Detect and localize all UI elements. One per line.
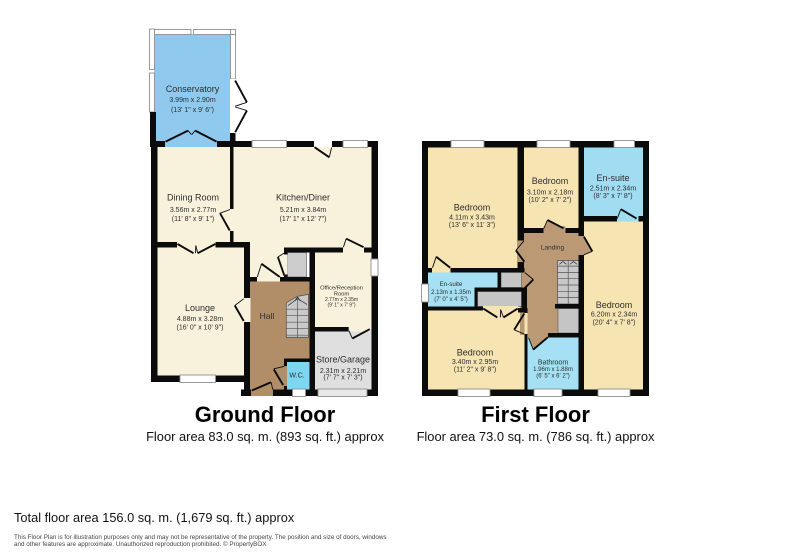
svg-text:2.51m x 2.34m: 2.51m x 2.34m: [590, 186, 636, 193]
svg-text:(7' 7" x 7' 3"): (7' 7" x 7' 3"): [323, 375, 362, 382]
svg-text:4.11m x 3.43m: 4.11m x 3.43m: [449, 215, 495, 222]
svg-text:3.56m x 2.77m: 3.56m x 2.77m: [170, 207, 216, 214]
svg-text:1.96m x 1.88m: 1.96m x 1.88m: [533, 367, 573, 373]
svg-text:First Floor: First Floor: [481, 402, 590, 427]
svg-text:and other features are approxi: and other features are approximate. Unau…: [14, 540, 267, 548]
svg-text:En-suite: En-suite: [596, 173, 629, 183]
svg-text:3.99m x 2.90m: 3.99m x 2.90m: [169, 97, 215, 104]
svg-text:(7' 0" x 4' 5"): (7' 0" x 4' 5"): [434, 297, 468, 303]
svg-text:Total floor area 156.0 sq. m.: Total floor area 156.0 sq. m. (1,679 sq.…: [14, 510, 295, 525]
svg-text:Dining Room: Dining Room: [167, 193, 219, 203]
svg-text:Bathroom: Bathroom: [538, 360, 569, 367]
svg-text:Conservatory: Conservatory: [166, 84, 220, 94]
svg-text:En-suite: En-suite: [440, 281, 463, 288]
svg-text:(16' 0" x 10' 9"): (16' 0" x 10' 9"): [177, 325, 224, 332]
svg-text:5.21m x 3.84m: 5.21m x 3.84m: [280, 207, 326, 214]
svg-text:Floor area 83.0 sq. m. (893 sq: Floor area 83.0 sq. m. (893 sq. ft.) app…: [146, 429, 384, 444]
svg-text:(20' 4" x 7' 8"): (20' 4" x 7' 8"): [592, 320, 635, 327]
svg-text:(8' 3" x 7' 8"): (8' 3" x 7' 8"): [593, 193, 632, 200]
svg-text:Landing: Landing: [541, 244, 565, 251]
svg-text:Lounge: Lounge: [185, 303, 215, 313]
svg-text:(9' 1" x 7' 9"): (9' 1" x 7' 9"): [328, 303, 356, 309]
svg-text:6.20m x 2.34m: 6.20m x 2.34m: [591, 312, 637, 319]
svg-text:Kitchen/Diner: Kitchen/Diner: [276, 193, 330, 203]
svg-text:(11' 2" x 9' 8"): (11' 2" x 9' 8"): [454, 367, 497, 374]
svg-text:(13' 6" x 11' 3"): (13' 6" x 11' 3"): [449, 222, 495, 229]
svg-text:Floor area 73.0 sq. m. (786 sq: Floor area 73.0 sq. m. (786 sq. ft.) app…: [417, 429, 655, 444]
svg-text:Bedroom: Bedroom: [454, 203, 491, 213]
svg-text:W.C.: W.C.: [289, 373, 304, 380]
svg-text:Store/Garage: Store/Garage: [316, 355, 370, 365]
svg-text:3.10m x 2.18m: 3.10m x 2.18m: [527, 190, 573, 197]
svg-text:(10' 2" x 7' 2"): (10' 2" x 7' 2"): [528, 197, 571, 204]
svg-text:4.88m x 3.28m: 4.88m x 3.28m: [177, 316, 223, 323]
svg-text:Ground Floor: Ground Floor: [195, 402, 336, 427]
svg-text:(6' 5" x 6' 2"): (6' 5" x 6' 2"): [536, 374, 570, 380]
svg-text:Hall: Hall: [260, 311, 275, 321]
svg-text:Bedroom: Bedroom: [596, 300, 633, 310]
svg-text:(17' 1" x 12' 7"): (17' 1" x 12' 7"): [280, 216, 327, 223]
svg-text:Bedroom: Bedroom: [457, 348, 494, 358]
svg-text:2.13m x 1.35m: 2.13m x 1.35m: [431, 290, 471, 296]
svg-text:3.40m x 2.95m: 3.40m x 2.95m: [452, 359, 498, 366]
svg-text:Bedroom: Bedroom: [532, 176, 569, 186]
svg-text:(13' 1" x 9' 6"): (13' 1" x 9' 6"): [171, 107, 214, 114]
svg-text:This Floor Plan is for illustr: This Floor Plan is for illustration purp…: [14, 534, 387, 541]
svg-text:(11' 8" x 9' 1"): (11' 8" x 9' 1"): [172, 216, 215, 223]
